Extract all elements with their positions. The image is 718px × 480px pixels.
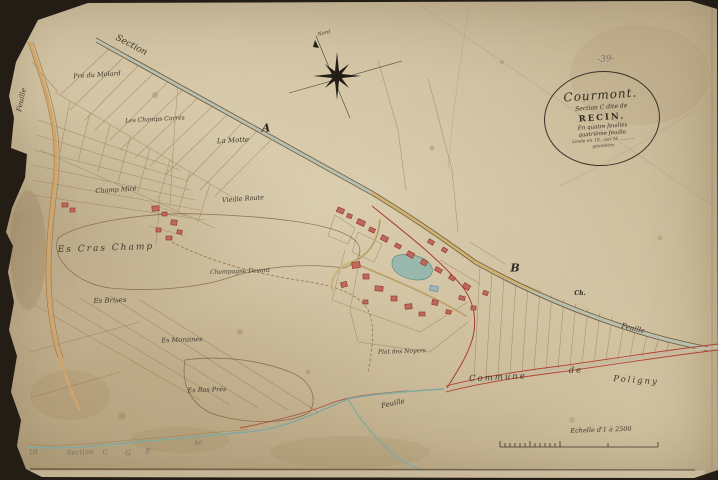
map-label: Vieille Route — [222, 194, 264, 203]
map-label: Commune — [469, 372, 527, 384]
map-label: Es Brises — [93, 297, 126, 305]
map-label: Es Cras Champ — [58, 243, 155, 255]
map-label: B — [510, 263, 519, 274]
map-label: Nord — [317, 30, 331, 38]
map-label: Es Bas Prés — [187, 386, 226, 394]
map-label: Section — [67, 449, 94, 457]
map-label: Champagne Devant — [210, 268, 270, 276]
map-paper: SectionPré du MolardLes Champs CarrésLa … — [0, 0, 718, 480]
cartouche-surveyor-line2: géomètre. — [592, 143, 616, 150]
map-label: Champ Miré — [95, 186, 136, 195]
map-label: Section — [114, 34, 148, 58]
map-label: Feuille — [16, 88, 28, 113]
map-label: A — [262, 123, 271, 134]
map-label: 10 — [29, 450, 38, 457]
map-label: Pré du Molard — [73, 70, 121, 80]
map-label: Es Moraines — [161, 336, 202, 344]
map-label: Ch. — [574, 291, 585, 297]
map-label: La Motte — [217, 137, 250, 146]
map-label: E — [145, 449, 150, 456]
map-label: Les Champs Carrés — [125, 115, 185, 124]
map-label: Feuille — [621, 323, 646, 335]
map-label: -39- — [597, 55, 615, 65]
map-label: C — [102, 450, 107, 457]
map-label: Plat des Noyers — [378, 348, 426, 356]
scanned-map-page: SectionPré du MolardLes Champs CarrésLa … — [0, 0, 718, 480]
map-label: 4e — [193, 439, 202, 447]
map-label: G — [125, 451, 131, 458]
map-label: de — [569, 366, 584, 375]
map-label: Echelle d'1 à 2500 — [570, 426, 631, 435]
map-label: Feuille — [381, 398, 406, 410]
map-label: Poligny — [613, 375, 659, 387]
